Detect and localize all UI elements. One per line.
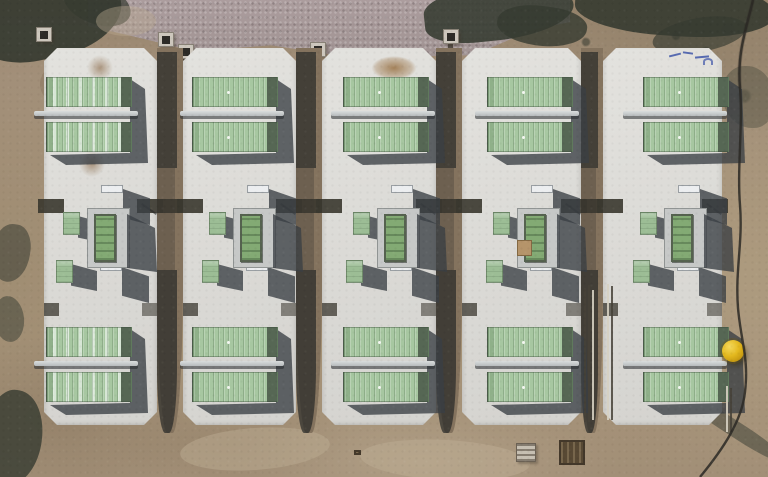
power-cable — [0, 0, 768, 477]
aerial-photo-battery-storage-site — [0, 0, 768, 477]
